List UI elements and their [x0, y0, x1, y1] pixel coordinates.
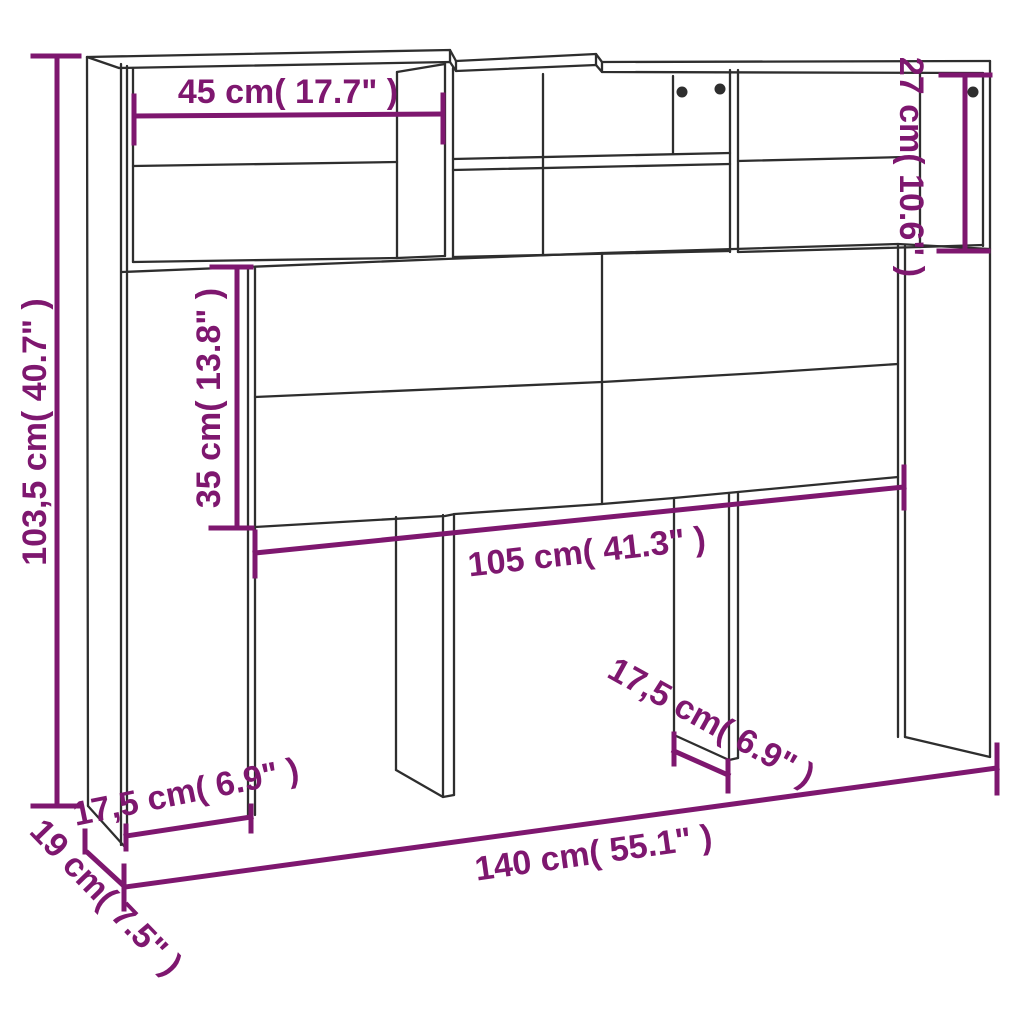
- dimension-diagram: 103,5 cm( 40.7" ) 45 cm( 17.7" ) 27 cm( …: [0, 0, 1024, 1024]
- compartment-width-label: 45 cm( 17.7" ): [178, 73, 398, 111]
- center-left-leg: [396, 514, 454, 797]
- panel-height-label: 35 cm( 13.8" ): [190, 288, 228, 508]
- dimension-total-depth: 19 cm( 7.5" ): [22, 812, 189, 983]
- compartment-height-label: 27 cm( 10.6" ): [892, 57, 930, 277]
- dimension-total-height: 103,5 cm( 40.7" ): [16, 56, 79, 806]
- total-depth-label: 19 cm( 7.5" ): [22, 812, 189, 983]
- right-foot-depth-label: 17,5 cm( 6.9" ): [602, 650, 821, 795]
- total-height-label: 103,5 cm( 40.7" ): [16, 298, 54, 566]
- cam-fitting-dots: [677, 84, 979, 98]
- cabinet-top-band: [87, 50, 990, 73]
- total-width-label: 140 cm( 55.1" ): [472, 818, 714, 889]
- dimension-right-foot-depth: 17,5 cm( 6.9" ): [602, 650, 821, 795]
- left-side-panel: [87, 57, 127, 846]
- left-foot-depth-label: 17,5 cm( 6.9" ): [69, 751, 302, 834]
- dimension-panel-height: 35 cm( 13.8" ): [190, 267, 252, 528]
- headboard-cabinet-drawing: 103,5 cm( 40.7" ) 45 cm( 17.7" ) 27 cm( …: [0, 0, 1024, 1024]
- dimension-left-foot-depth: 17,5 cm( 6.9" ): [69, 751, 302, 849]
